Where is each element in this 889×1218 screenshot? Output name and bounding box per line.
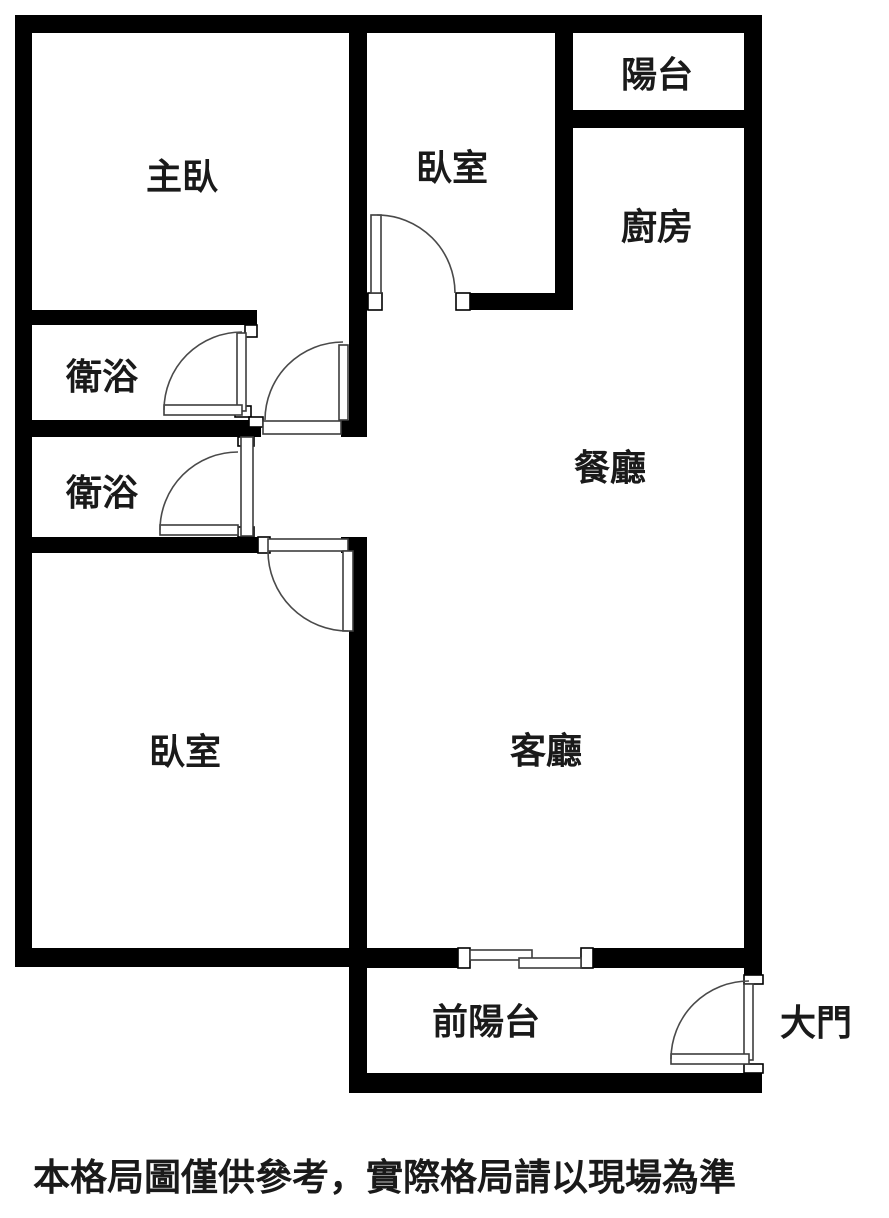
door-leaf bbox=[237, 333, 246, 411]
door-bathroom-lower bbox=[160, 437, 254, 537]
room-label-bedroom-bottom: 臥室 bbox=[149, 734, 221, 770]
wall-living-bottom-left bbox=[367, 948, 458, 968]
wall-bedroom-top-right bbox=[555, 33, 573, 310]
door-jamb bbox=[744, 975, 763, 984]
walls bbox=[15, 15, 762, 1093]
wall-under-master-bedroom bbox=[32, 310, 257, 325]
wall-bedroom-top-bottom-left bbox=[349, 293, 368, 310]
room-label-front-balcony: 前陽台 bbox=[432, 1004, 540, 1040]
door-swing-arc bbox=[265, 342, 343, 420]
door-leaf bbox=[744, 984, 753, 1060]
door-jamb bbox=[456, 293, 470, 310]
sliding-door-jamb bbox=[458, 948, 470, 968]
room-label-bathroom-lower: 衛浴 bbox=[66, 475, 138, 511]
wall-top-exterior bbox=[15, 15, 762, 33]
door-swing-arc bbox=[377, 215, 455, 293]
room-label-master-bedroom: 主臥 bbox=[146, 159, 218, 195]
door-leaf bbox=[339, 345, 348, 420]
room-label-balcony-top: 陽台 bbox=[621, 57, 693, 93]
room-label-kitchen: 廚房 bbox=[621, 209, 693, 245]
door-swing-arc bbox=[268, 551, 348, 631]
sliding-door-panel bbox=[519, 958, 581, 968]
door-jamb bbox=[245, 325, 257, 337]
door-bedroom-top bbox=[368, 215, 470, 310]
wall-master-bedroom-right bbox=[349, 33, 367, 437]
wall-bathroom-lower-bottom bbox=[15, 537, 258, 553]
door-bathroom-upper bbox=[164, 325, 257, 417]
door-leaf bbox=[241, 437, 253, 536]
door-swing-arc bbox=[671, 981, 749, 1059]
room-label-dining-room: 餐廳 bbox=[574, 450, 646, 486]
room-label-bedroom-top: 臥室 bbox=[416, 150, 488, 186]
room-label-main-door: 大門 bbox=[780, 1005, 852, 1041]
door-leaf bbox=[671, 1054, 749, 1064]
door-leaf bbox=[343, 551, 353, 631]
wall-balcony-top-bottom bbox=[573, 110, 744, 128]
door-jamb bbox=[249, 417, 263, 427]
door-swing-arc bbox=[164, 332, 242, 410]
door-upper-hallway bbox=[249, 342, 348, 434]
door-jamb bbox=[744, 1064, 763, 1073]
wall-between-bathrooms bbox=[15, 420, 261, 437]
floor-plan: 主臥 臥室 陽台 廚房 衛浴 衛浴 餐廳 客廳 臥室 前陽台 大門 本格局圖僅供… bbox=[0, 0, 889, 1218]
door-leaf bbox=[263, 421, 341, 434]
wall-right-exterior-upper bbox=[744, 33, 762, 983]
wall-front-balcony-bottom bbox=[349, 1073, 762, 1093]
door-bedroom-bottom bbox=[258, 537, 353, 631]
door-swing-arc bbox=[160, 452, 238, 530]
disclaimer-text: 本格局圖僅供參考，實際格局請以現場為準 bbox=[33, 1159, 736, 1196]
sliding-door-front-balcony bbox=[458, 948, 593, 968]
wall-left-exterior bbox=[15, 33, 32, 967]
door-main-entrance bbox=[671, 975, 763, 1073]
wall-living-bottom-right bbox=[593, 948, 744, 968]
room-label-living-room: 客廳 bbox=[510, 733, 582, 769]
sliding-door-jamb bbox=[581, 948, 593, 968]
door-jamb bbox=[368, 293, 382, 310]
wall-vestibule-stub bbox=[341, 420, 367, 437]
wall-bedroom-bottom-exterior bbox=[15, 948, 367, 967]
door-leaf bbox=[164, 405, 242, 415]
door-leaf bbox=[371, 215, 381, 293]
room-label-bathroom-upper: 衛浴 bbox=[66, 359, 138, 395]
door-leaf bbox=[268, 539, 348, 551]
door-leaf bbox=[160, 525, 238, 535]
wall-bedroom-top-bottom-right bbox=[470, 293, 555, 310]
